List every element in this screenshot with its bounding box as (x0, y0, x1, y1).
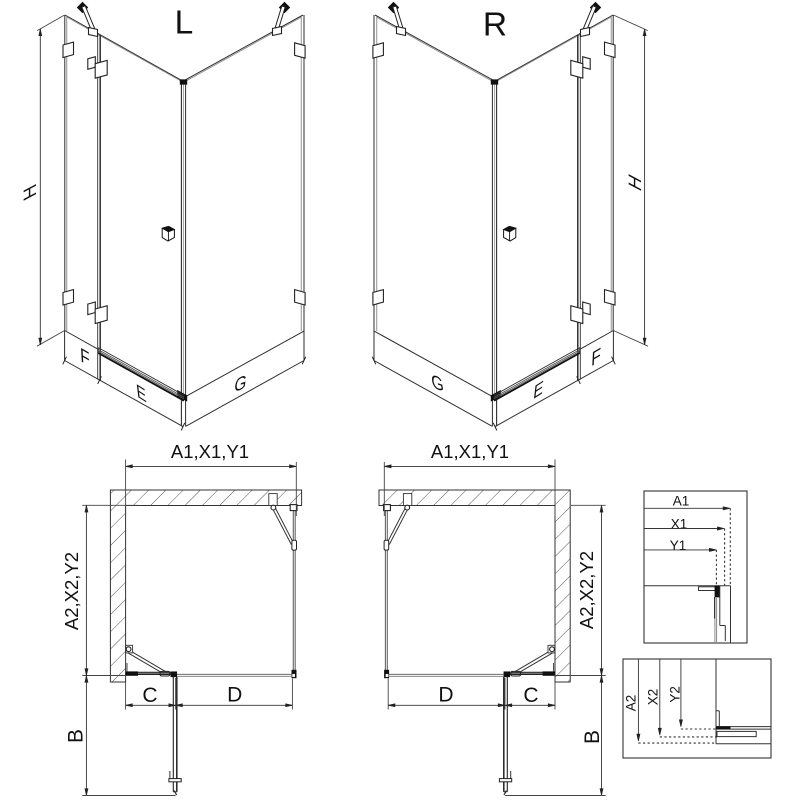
svg-text:Y1: Y1 (670, 538, 687, 553)
svg-text:C: C (523, 684, 538, 707)
svg-text:L: L (175, 5, 194, 42)
svg-text:A1: A1 (673, 494, 690, 509)
svg-text:X2: X2 (646, 689, 661, 706)
svg-text:A2,X2,Y2: A2,X2,Y2 (576, 551, 597, 629)
svg-text:B: B (65, 729, 88, 743)
svg-text:B: B (581, 730, 604, 744)
svg-text:D: D (438, 684, 453, 707)
svg-text:R: R (483, 7, 507, 44)
svg-text:A1,X1,Y1: A1,X1,Y1 (171, 441, 249, 462)
svg-text:D: D (227, 684, 242, 707)
svg-text:A1,X1,Y1: A1,X1,Y1 (431, 441, 509, 462)
svg-text:Y2: Y2 (667, 686, 682, 703)
svg-text:C: C (142, 684, 157, 707)
svg-text:A2: A2 (624, 695, 639, 712)
svg-text:A2,X2,Y2: A2,X2,Y2 (61, 552, 82, 630)
svg-text:X1: X1 (671, 517, 688, 532)
